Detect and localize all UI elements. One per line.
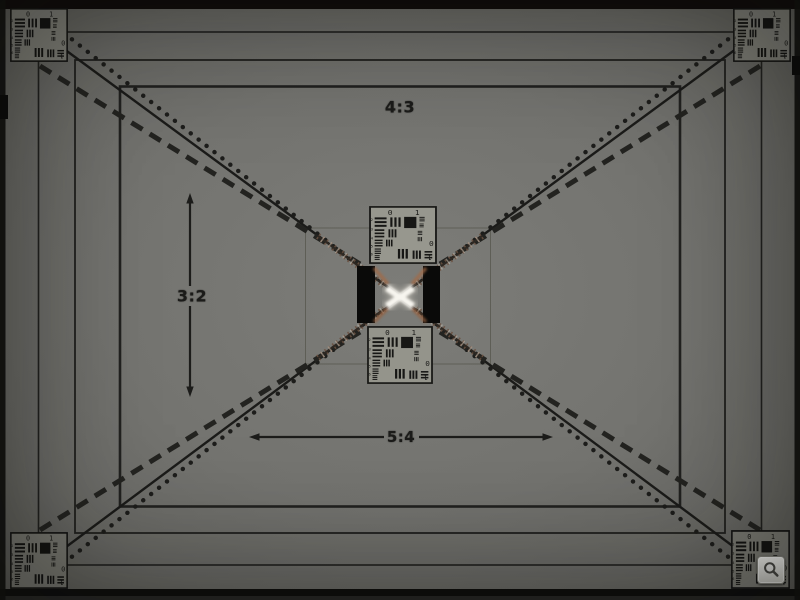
center-crossing-highlight <box>374 268 426 322</box>
svg-text:0: 0 <box>26 10 30 18</box>
svg-text:1: 1 <box>415 208 420 217</box>
svg-text:0: 0 <box>26 535 30 543</box>
svg-text:4: 4 <box>732 561 734 565</box>
usaf-target-bottom-left: 0 1 2 3 4 5 6 0 1 <box>10 532 68 589</box>
svg-text:0: 0 <box>385 328 390 337</box>
usaf-target-graphic: 0 1 2 3 4 5 6 0 1 <box>10 8 68 62</box>
svg-text:3: 3 <box>369 347 371 351</box>
svg-text:6: 6 <box>11 577 13 581</box>
zoom-button[interactable] <box>757 556 785 584</box>
usaf-target-top-right: 0 1 2 3 4 5 6 0 1 <box>733 8 791 62</box>
svg-text:1: 1 <box>772 10 776 18</box>
usaf-target-graphic: 0 1 2 3 4 5 6 0 1 <box>733 8 791 62</box>
svg-text:3: 3 <box>11 553 13 557</box>
svg-text:3: 3 <box>732 552 734 556</box>
svg-text:4: 4 <box>734 36 736 40</box>
svg-text:0: 0 <box>784 38 788 46</box>
aspect-label-4-3: 4:3 <box>385 98 415 117</box>
svg-text:2: 2 <box>732 542 734 546</box>
svg-text:0: 0 <box>61 38 65 46</box>
svg-text:0: 0 <box>425 359 430 368</box>
svg-text:6: 6 <box>369 372 371 376</box>
svg-text:6: 6 <box>11 51 13 55</box>
svg-text:6: 6 <box>371 252 373 256</box>
svg-text:1: 1 <box>49 535 53 543</box>
svg-text:0: 0 <box>747 532 751 541</box>
dashed-diagonals <box>40 66 760 530</box>
svg-text:1: 1 <box>412 328 417 337</box>
svg-text:0: 0 <box>749 10 753 18</box>
svg-text:1: 1 <box>49 10 53 18</box>
svg-text:2: 2 <box>369 338 371 342</box>
svg-text:5: 5 <box>369 365 371 369</box>
svg-text:6: 6 <box>732 577 734 581</box>
svg-text:2: 2 <box>734 19 736 23</box>
svg-text:2: 2 <box>11 19 13 23</box>
center-black-bars <box>357 266 440 323</box>
svg-text:5: 5 <box>11 44 13 48</box>
svg-text:3: 3 <box>11 28 13 32</box>
svg-text:3: 3 <box>371 227 373 231</box>
aspect-label-3-2: 3:2 <box>177 287 207 306</box>
photo-edge-shadows <box>0 0 800 600</box>
svg-text:4: 4 <box>11 562 13 566</box>
svg-text:0: 0 <box>428 239 433 248</box>
chart-linework <box>0 0 800 600</box>
svg-text:4: 4 <box>11 36 13 40</box>
usaf-target-top-left: 0 1 2 3 4 5 6 0 1 <box>10 8 68 62</box>
svg-text:1: 1 <box>771 532 775 541</box>
svg-text:5: 5 <box>371 245 373 249</box>
svg-text:0: 0 <box>388 208 393 217</box>
svg-text:5: 5 <box>11 570 13 574</box>
aspect-label-5-4: 5:4 <box>387 428 415 446</box>
usaf-target-graphic: 0 1 2 3 4 5 6 0 1 <box>10 532 68 589</box>
usaf-target-center-top: 0 1 2 3 4 5 6 0 1 <box>369 206 437 264</box>
test-chart-photograph: 0 1 2 3 4 5 6 0 1 <box>0 0 800 600</box>
svg-text:2: 2 <box>371 218 373 222</box>
svg-text:0: 0 <box>61 564 65 572</box>
magnifier-icon <box>761 560 781 580</box>
svg-text:3: 3 <box>734 28 736 32</box>
svg-text:5: 5 <box>732 569 734 573</box>
svg-text:6: 6 <box>734 51 736 55</box>
svg-text:2: 2 <box>11 544 13 548</box>
usaf-target-center-bottom: 0 1 2 3 4 5 6 0 1 <box>367 326 433 384</box>
usaf-target-graphic: 0 1 2 3 4 5 6 0 1 <box>367 326 433 384</box>
usaf-target-graphic: 0 1 2 3 4 5 6 0 1 <box>369 206 437 264</box>
svg-text:5: 5 <box>734 44 736 48</box>
